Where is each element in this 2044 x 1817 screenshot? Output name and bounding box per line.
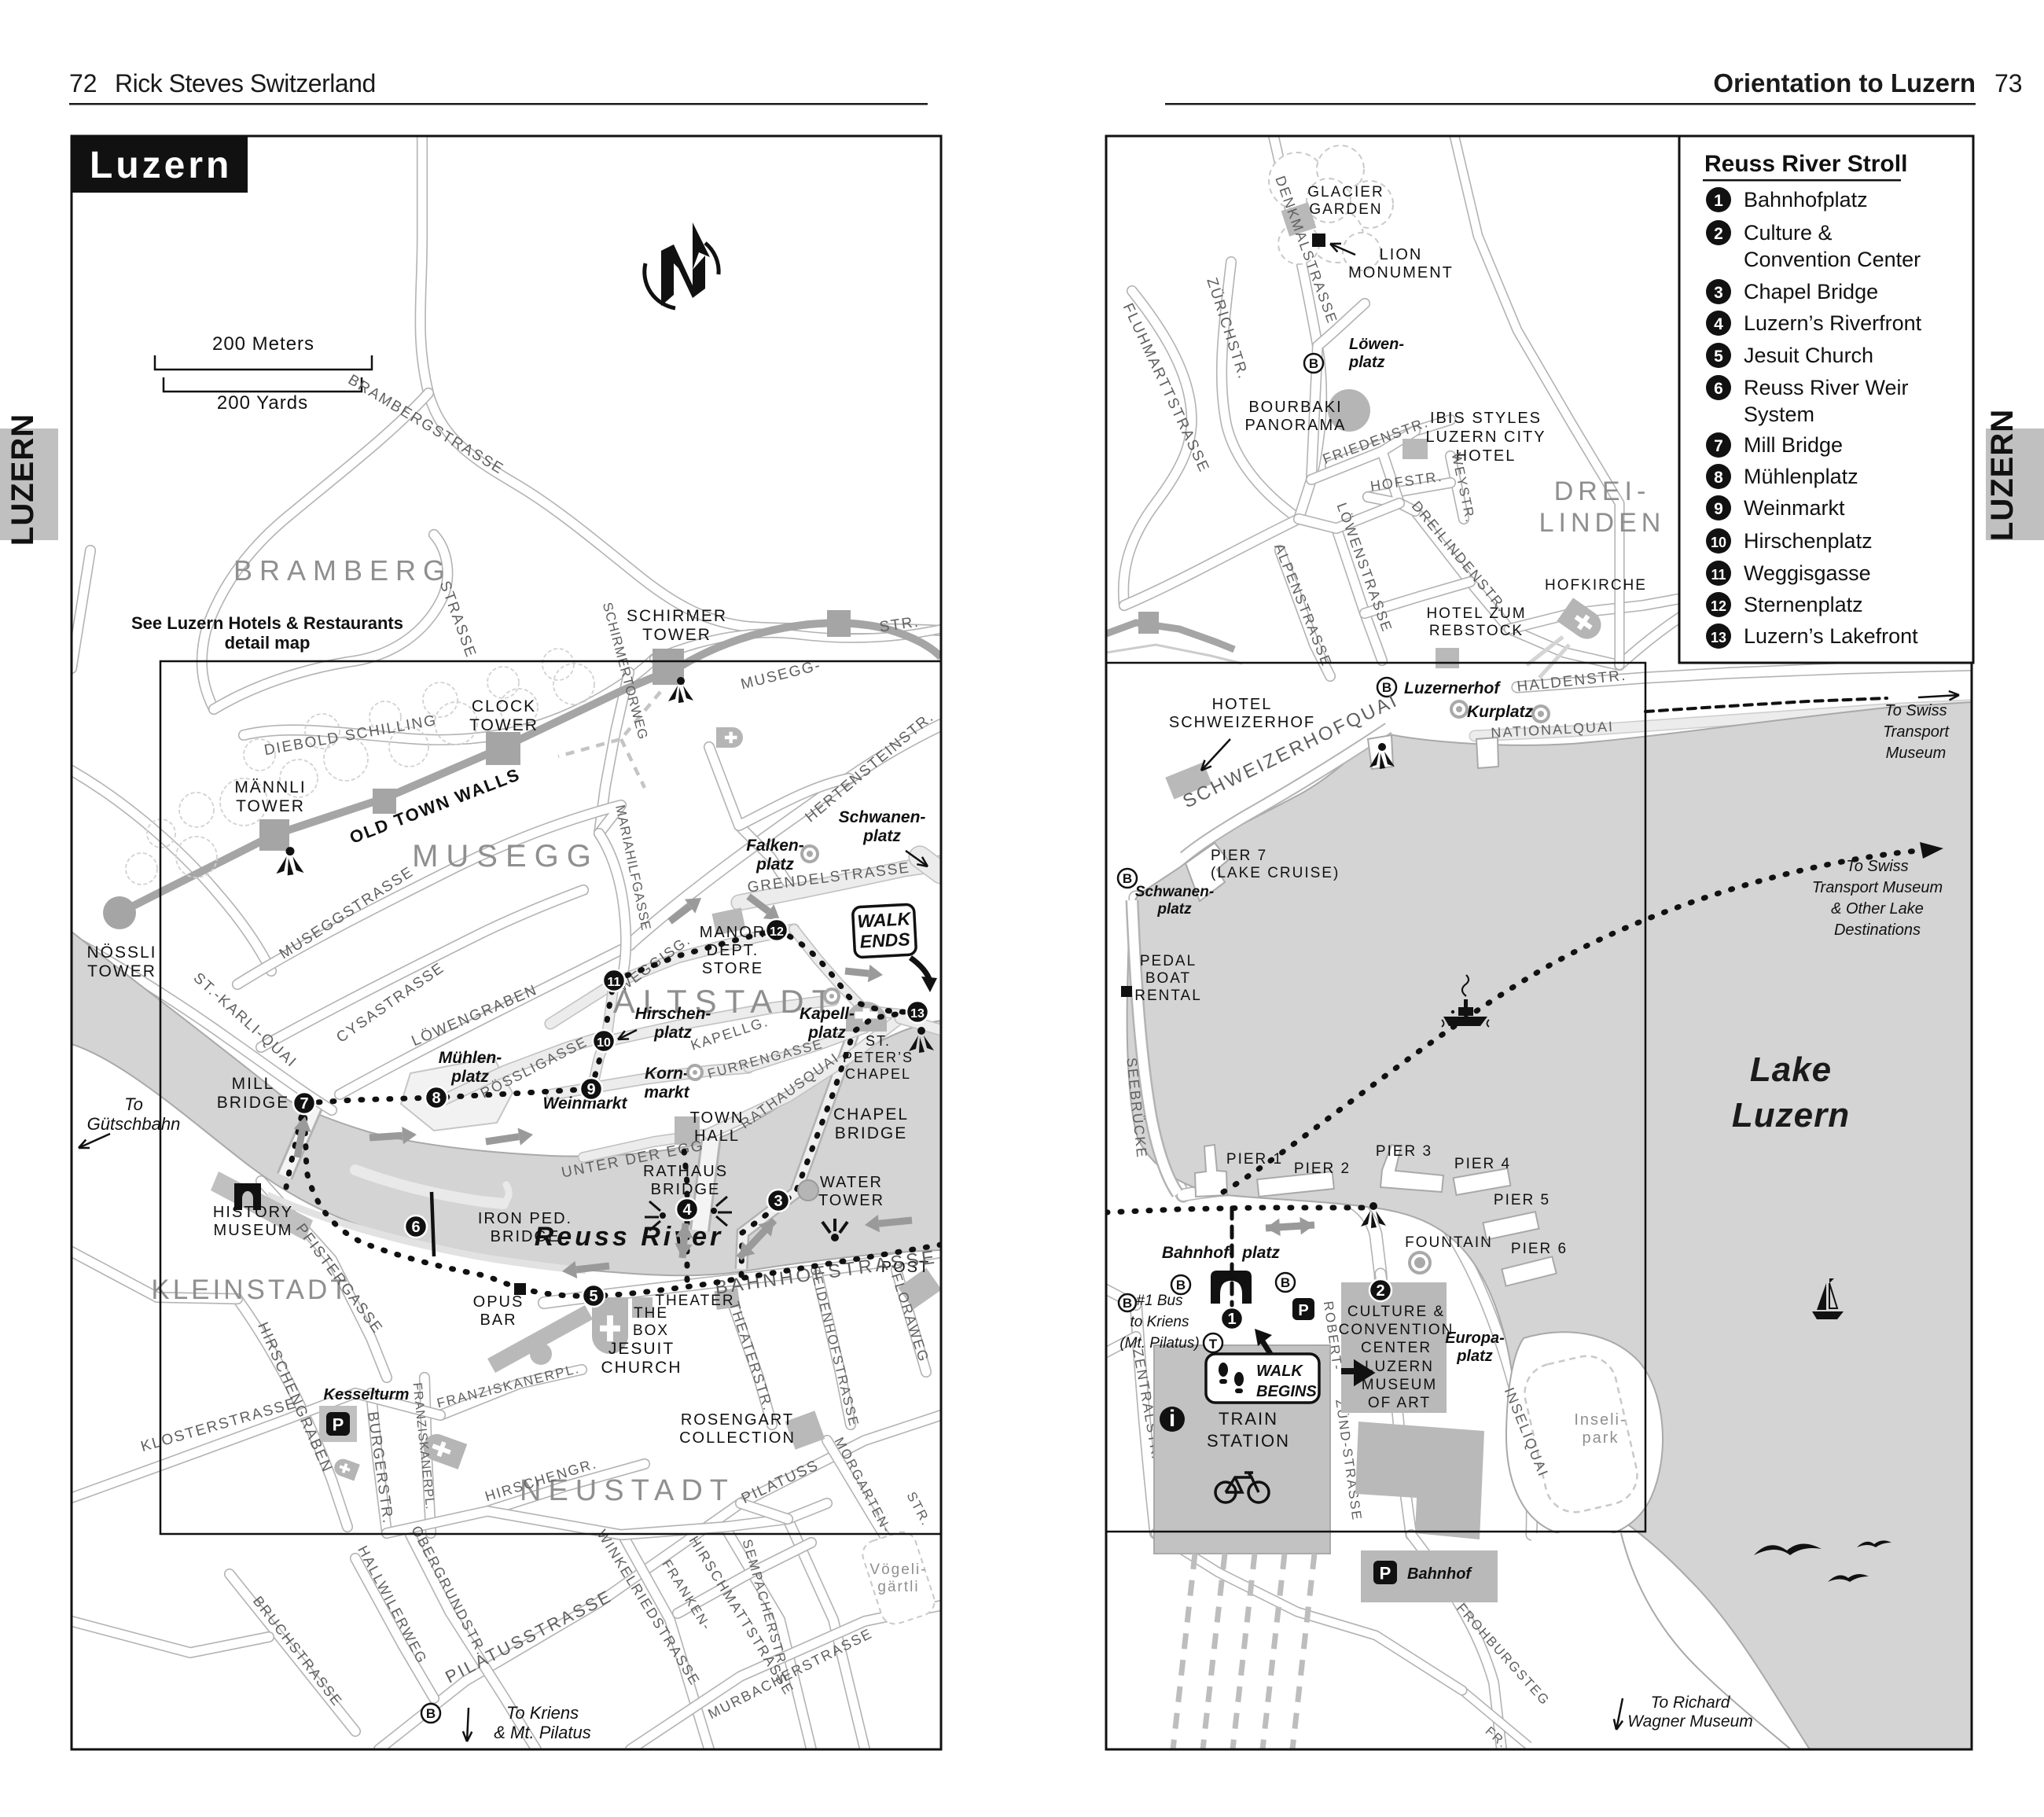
svg-text:HISTORYMUSEUM: HISTORYMUSEUM	[213, 1204, 293, 1239]
svg-text:12: 12	[770, 925, 784, 939]
svg-text:BEGINS: BEGINS	[1256, 1383, 1317, 1400]
svg-text:NÖSSLITOWER: NÖSSLITOWER	[86, 943, 156, 980]
svg-text:BRAMBERG: BRAMBERG	[233, 554, 452, 587]
svg-text:T: T	[1209, 1337, 1218, 1352]
svg-text:PIER 1: PIER 1	[1226, 1151, 1283, 1168]
svg-text:Mill Bridge: Mill Bridge	[1744, 433, 1843, 457]
svg-text:72: 72	[69, 69, 97, 97]
svg-text:PIER 3: PIER 3	[1376, 1143, 1432, 1160]
svg-text:Rick Steves Switzerland: Rick Steves Switzerland	[115, 69, 376, 97]
svg-text:WALK: WALK	[1256, 1363, 1303, 1380]
svg-text:THEBOX: THEBOX	[633, 1305, 669, 1339]
svg-text:6: 6	[411, 1219, 420, 1236]
svg-text:Bahnhofplatz: Bahnhofplatz	[1744, 188, 1868, 211]
svg-text:2: 2	[1714, 225, 1723, 243]
svg-text:CLOCKTOWER: CLOCKTOWER	[469, 697, 539, 734]
svg-text:B: B	[1281, 1275, 1290, 1290]
svg-text:200 Meters: 200 Meters	[212, 333, 314, 355]
svg-text:7: 7	[300, 1095, 308, 1113]
svg-text:Bahnhof-: Bahnhof-	[1162, 1244, 1234, 1262]
svg-text:1: 1	[1714, 192, 1723, 210]
svg-text:11: 11	[1711, 567, 1726, 583]
svg-text:B: B	[1176, 1278, 1186, 1293]
svg-text:Luzern’s Riverfront: Luzern’s Riverfront	[1744, 311, 1922, 335]
svg-text:Luzern: Luzern	[90, 145, 232, 186]
svg-text:JESUITCHURCH: JESUITCHURCH	[601, 1340, 682, 1377]
svg-text:Luzernerhof: Luzernerhof	[1404, 679, 1501, 697]
svg-text:6: 6	[1714, 380, 1723, 398]
svg-text:GLACIERGARDEN: GLACIERGARDEN	[1307, 184, 1384, 218]
svg-text:WALK: WALK	[857, 908, 912, 932]
svg-text:7: 7	[1714, 437, 1723, 455]
svg-text:Reuss River: Reuss River	[535, 1222, 724, 1252]
svg-text:Kesselturm: Kesselturm	[324, 1386, 410, 1403]
svg-text:MANORDEPT.STORE: MANORDEPT.STORE	[700, 924, 766, 977]
svg-text:Reuss River Stroll: Reuss River Stroll	[1704, 151, 1907, 177]
svg-text:B: B	[1123, 871, 1132, 886]
svg-text:13: 13	[1711, 630, 1726, 646]
svg-text:3: 3	[774, 1193, 782, 1210]
svg-text:200 Yards: 200 Yards	[217, 392, 308, 414]
svg-text:LUZERN: LUZERN	[6, 414, 40, 546]
svg-text:13: 13	[910, 1007, 925, 1021]
svg-text:3: 3	[1714, 284, 1723, 302]
svg-text:4: 4	[1714, 315, 1723, 333]
svg-text:Bahnhof: Bahnhof	[1407, 1565, 1472, 1583]
svg-text:10: 10	[597, 1036, 611, 1050]
svg-text:Luzern’s Lakefront: Luzern’s Lakefront	[1744, 624, 1918, 648]
svg-text:4: 4	[682, 1201, 692, 1219]
svg-text:8: 8	[1714, 469, 1723, 487]
svg-text:KLEINSTADT: KLEINSTADT	[151, 1274, 350, 1305]
svg-text:B: B	[1309, 356, 1318, 371]
svg-text:8: 8	[432, 1090, 440, 1107]
svg-text:LUZERNMUSEUMOF ART: LUZERNMUSEUMOF ART	[1362, 1359, 1437, 1411]
svg-text:5: 5	[589, 1288, 597, 1305]
svg-text:Weggisgasse: Weggisgasse	[1744, 561, 1871, 585]
svg-text:10: 10	[1711, 535, 1726, 550]
svg-text:12: 12	[1711, 598, 1726, 614]
svg-text:P: P	[333, 1414, 344, 1434]
svg-text:11: 11	[608, 976, 621, 989]
svg-text:TOWNHALL: TOWNHALL	[690, 1109, 744, 1145]
svg-text:CHAPELBRIDGE: CHAPELBRIDGE	[833, 1105, 909, 1142]
svg-text:platz: platz	[1241, 1244, 1280, 1262]
svg-text:Jesuit Church: Jesuit Church	[1744, 344, 1873, 367]
svg-text:HOTEL ZUMREBSTOCK: HOTEL ZUMREBSTOCK	[1426, 605, 1526, 639]
svg-text:9: 9	[1714, 500, 1723, 518]
svg-text:P: P	[1298, 1302, 1308, 1319]
svg-text:LUZERN: LUZERN	[1985, 409, 2020, 541]
svg-text:B: B	[1123, 1296, 1132, 1311]
svg-text:Weinmarkt: Weinmarkt	[1744, 496, 1845, 520]
svg-text:Chapel Bridge: Chapel Bridge	[1744, 280, 1878, 303]
svg-text:9: 9	[586, 1081, 595, 1098]
svg-text:2: 2	[1376, 1282, 1384, 1300]
svg-text:1: 1	[1227, 1311, 1236, 1328]
svg-text:Hirschenplatz: Hirschenplatz	[1744, 529, 1873, 553]
svg-text:Sternenplatz: Sternenplatz	[1744, 593, 1863, 616]
svg-text:PIER 2: PIER 2	[1294, 1160, 1351, 1177]
svg-text:MUSEGG: MUSEGG	[412, 839, 599, 874]
svg-text:Korn-markt: Korn-markt	[644, 1065, 689, 1102]
svg-text:P: P	[1380, 1563, 1391, 1583]
svg-text:Vögeli-gärtli: Vögeli-gärtli	[869, 1561, 927, 1595]
svg-text:5: 5	[1714, 348, 1723, 366]
svg-text:PIER 4: PIER 4	[1454, 1156, 1511, 1172]
svg-text:WATERTOWER: WATERTOWER	[818, 1174, 884, 1209]
svg-text:i: i	[1169, 1406, 1175, 1432]
svg-text:ROSENGARTCOLLECTION: ROSENGARTCOLLECTION	[679, 1411, 796, 1447]
svg-text:BOURBAKIPANORAMA: BOURBAKIPANORAMA	[1245, 399, 1347, 434]
svg-text:B: B	[426, 1706, 436, 1721]
svg-text:FOUNTAIN: FOUNTAIN	[1405, 1234, 1493, 1251]
svg-text:PIER 6: PIER 6	[1511, 1241, 1568, 1257]
svg-text:HOFKIRCHE: HOFKIRCHE	[1545, 577, 1647, 594]
svg-text:Mühlenplatz: Mühlenplatz	[1744, 465, 1858, 488]
svg-text:73: 73	[1994, 69, 2023, 97]
svg-text:To Kriens& Mt. Pilatus: To Kriens& Mt. Pilatus	[494, 1703, 590, 1742]
svg-text:Kurplatz: Kurplatz	[1467, 703, 1534, 721]
svg-text:ENDS: ENDS	[859, 929, 911, 951]
svg-text:PIER 5: PIER 5	[1494, 1192, 1550, 1208]
svg-text:OPUSBAR: OPUSBAR	[473, 1293, 524, 1329]
svg-text:Orientation to Luzern: Orientation to Luzern	[1713, 68, 1976, 97]
svg-text:To SwissTransportMuseum: To SwissTransportMuseum	[1883, 702, 1950, 762]
svg-text:MÄNNLITOWER: MÄNNLITOWER	[234, 778, 306, 815]
